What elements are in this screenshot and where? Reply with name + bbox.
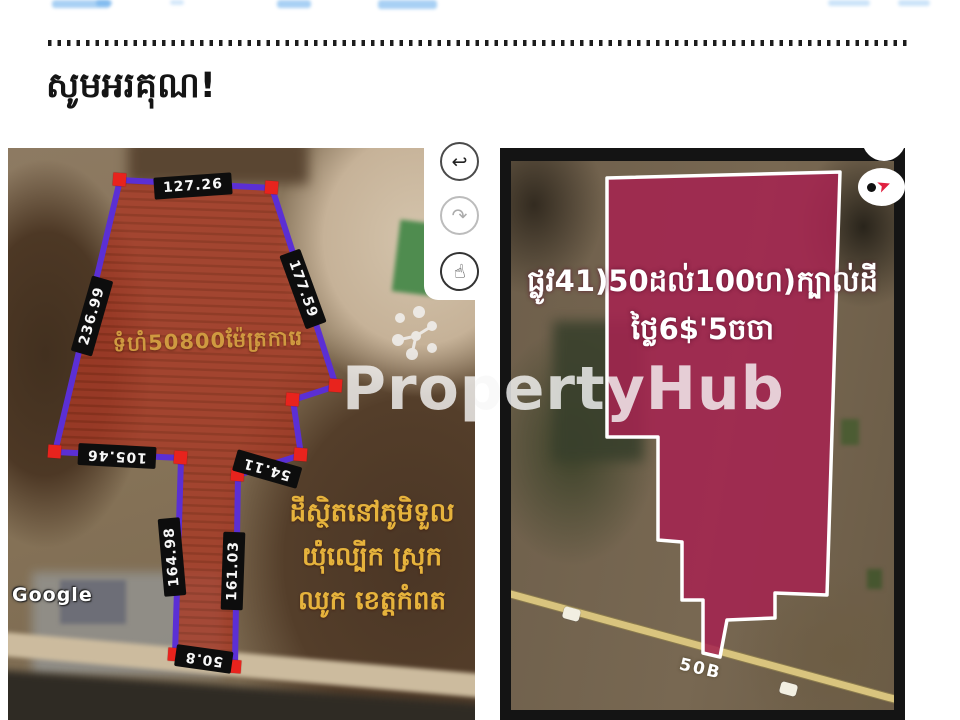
share-button[interactable]: ➤ [858, 168, 905, 206]
dot-icon [867, 183, 876, 192]
cropped-text-fragment [828, 0, 870, 6]
vertex-marker [48, 445, 62, 459]
reply-arrow-icon: ↩ [452, 151, 468, 173]
cropped-text-fragment [898, 0, 930, 6]
vertex-marker [174, 451, 188, 465]
vertex-marker [294, 448, 308, 462]
parcel-polygon [8, 148, 475, 720]
cropped-text-fragment [378, 0, 437, 9]
vertex-marker [265, 181, 279, 195]
reply-arrow-button[interactable]: ↩ [440, 142, 479, 181]
page: សូមអរគុណ! 127.26 177. [0, 0, 960, 720]
cropped-text-fragment [170, 0, 184, 5]
left-map-image[interactable]: 127.26 177.59 236.99 105.46 54.11 164.98… [8, 148, 475, 720]
cropped-circle-button[interactable] [862, 148, 905, 161]
dotted-separator [48, 40, 912, 46]
cropped-text-fragment [96, 0, 112, 6]
redo-arrow-button[interactable]: ↷ [440, 196, 479, 235]
location-text-line: ឈូក ខេត្តកំពត [264, 588, 475, 614]
right-map-image[interactable]: 50B ផ្លូវ41)50ដល់100ហ)ក្បាល់ដី ថ្លៃ6$'5ច… [500, 148, 905, 720]
caption-line-2: ថ្លៃ6$'5ចចា [500, 312, 905, 354]
location-text-line: ដីស្ថិតនៅភូមិទួល [264, 500, 475, 526]
edge-length-label: 161.03 [221, 532, 246, 611]
location-text-line: យ៉ុំល្បើក ស្រុក [264, 544, 475, 570]
google-watermark: Google [12, 584, 93, 606]
cropped-text-fragment [277, 0, 311, 8]
parcel-polygon [511, 161, 894, 710]
edge-length-label: 105.46 [77, 443, 156, 469]
satellite-area: 50B [511, 161, 894, 710]
vertex-marker [329, 379, 343, 393]
vertex-marker [113, 173, 127, 187]
greeting-text: សូមអរគុណ! [46, 64, 216, 115]
share-arrow-icon: ➤ [874, 174, 894, 198]
redo-arrow-icon: ↷ [452, 205, 468, 227]
caption-line-1: ផ្លូវ41)50ដល់100ហ)ក្បាល់ដី [500, 264, 905, 306]
pointing-hand-icon: ☝ [452, 260, 467, 283]
vertex-marker [286, 393, 300, 407]
